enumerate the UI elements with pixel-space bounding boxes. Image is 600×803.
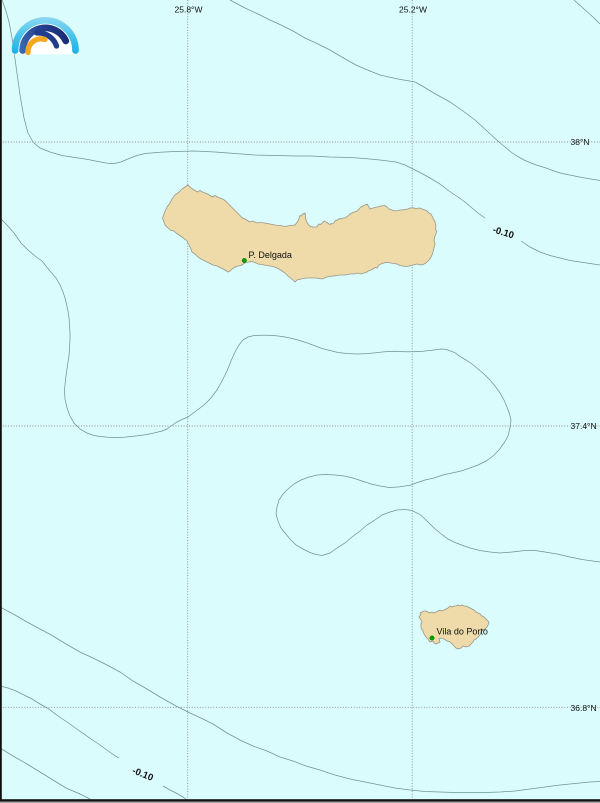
svg-text:Vila do Porto: Vila do Porto xyxy=(437,627,488,637)
svg-text:36.8°N: 36.8°N xyxy=(571,703,597,713)
svg-text:25.8°W: 25.8°W xyxy=(175,5,203,15)
svg-text:P. Delgada: P. Delgada xyxy=(249,250,292,260)
svg-text:38°N: 38°N xyxy=(571,137,590,147)
svg-text:25.2°W: 25.2°W xyxy=(399,5,427,15)
svg-text:37.4°N: 37.4°N xyxy=(571,421,597,431)
